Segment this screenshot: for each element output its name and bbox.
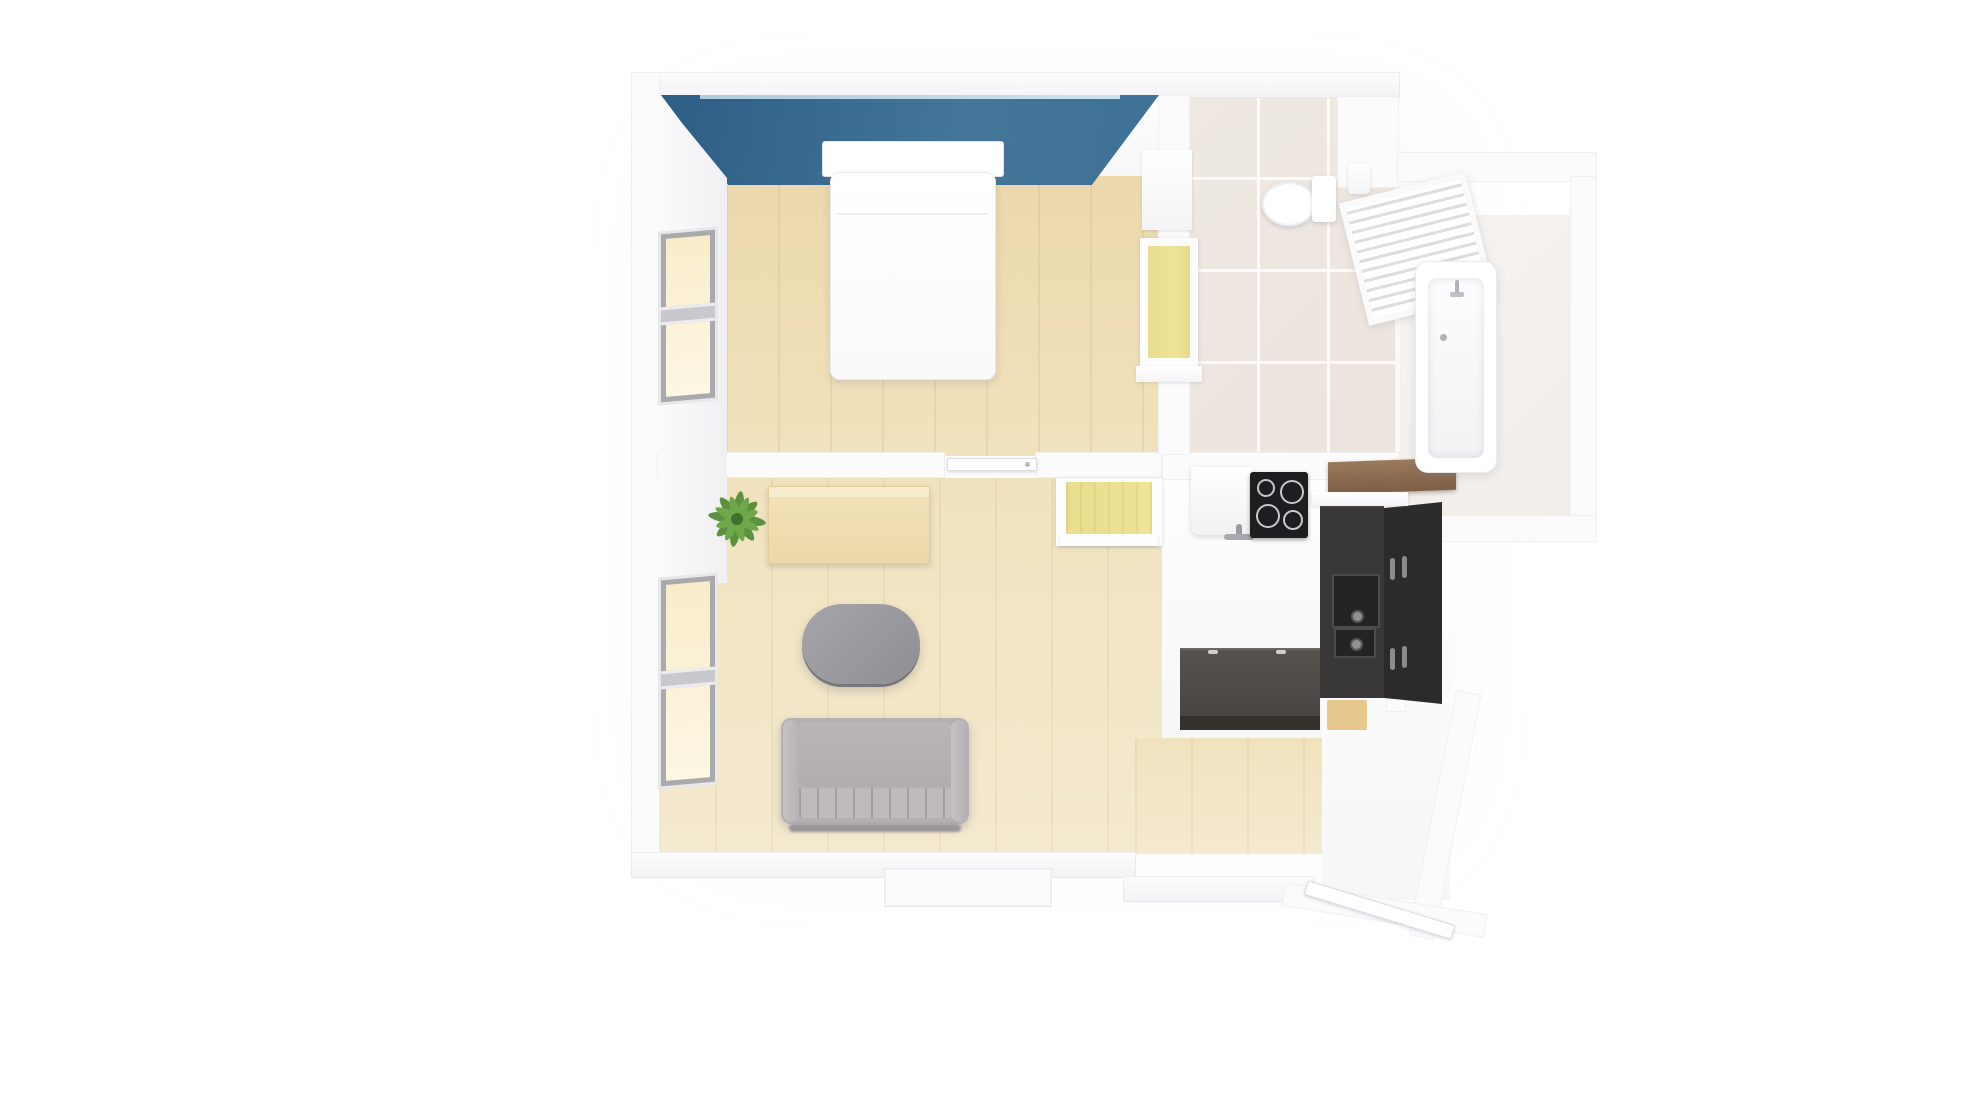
window-crossbar <box>661 667 715 690</box>
oven-column <box>1320 502 1442 704</box>
annex-wall-right <box>1570 176 1597 538</box>
plant-graphic <box>704 486 770 552</box>
tub-faucet-spout <box>1450 292 1464 297</box>
oven-upper <box>1332 574 1380 628</box>
interior-door-handle <box>1025 462 1030 467</box>
accent-wall-highlight <box>700 95 1120 99</box>
wardrobe-niche-interior <box>1148 246 1190 358</box>
corner-niche-interior <box>1066 482 1152 534</box>
bed <box>830 172 996 380</box>
tub-drain <box>1440 334 1447 341</box>
cooktop <box>1250 472 1308 538</box>
divider-wall-east <box>1035 452 1162 478</box>
oven-column-right-face <box>1384 502 1442 704</box>
bathtub <box>1416 262 1496 472</box>
sofa-tufted-front <box>799 788 951 818</box>
potted-plant <box>704 486 770 552</box>
oven-knob <box>1350 638 1363 651</box>
window-crossbar <box>661 303 715 326</box>
oven-knob <box>1351 610 1364 623</box>
floor-plan-canvas <box>0 0 1980 1113</box>
burner <box>1256 504 1280 528</box>
burner <box>1257 479 1275 497</box>
living-room-window <box>661 576 715 787</box>
sofa-armrest-left <box>783 720 799 822</box>
sofa-seat <box>799 722 951 786</box>
bedroom-window <box>661 230 715 403</box>
threshold-block <box>884 868 1052 907</box>
kitchen-floor-wood <box>1135 738 1322 854</box>
island-front <box>1180 716 1320 730</box>
kitchen-island <box>1180 648 1320 730</box>
tub-faucet <box>1450 280 1464 300</box>
cabinet-handle <box>1402 646 1407 668</box>
floor-mat <box>1327 700 1367 730</box>
wardrobe-niche-frame <box>1140 238 1198 366</box>
shelf-ledge <box>1312 492 1408 506</box>
island-top <box>1180 648 1320 718</box>
toilet-paper-holder <box>1348 164 1370 194</box>
cabinet-handle <box>1402 556 1407 578</box>
toilet <box>1262 174 1340 228</box>
sofa-armrest-right <box>951 720 967 822</box>
corner-niche-frame <box>1056 478 1162 546</box>
sofa <box>781 718 969 824</box>
burner <box>1283 510 1303 530</box>
cabinet-handle <box>1390 558 1395 580</box>
bathtub-inner <box>1428 278 1484 458</box>
wardrobe-upper-box <box>1142 150 1192 230</box>
sofa-base-shadow <box>789 824 961 832</box>
burner <box>1280 480 1304 504</box>
oven-lower <box>1334 628 1376 658</box>
wardrobe-ledge <box>1136 366 1202 382</box>
island-hinge <box>1208 650 1218 654</box>
sideboard-top-highlight <box>769 487 929 497</box>
cabinet-handle <box>1390 648 1395 670</box>
outer-wall-left <box>631 72 660 878</box>
toilet-cistern <box>1312 176 1336 222</box>
corner-niche-sill <box>1060 536 1158 546</box>
coffee-table <box>802 604 920 684</box>
bed-fold-line <box>837 213 989 215</box>
toilet-bowl <box>1262 182 1316 226</box>
interior-door-leaf <box>947 458 1037 471</box>
island-hinge <box>1276 650 1286 654</box>
annex-wall-top <box>1397 152 1597 182</box>
sideboard <box>768 486 930 564</box>
